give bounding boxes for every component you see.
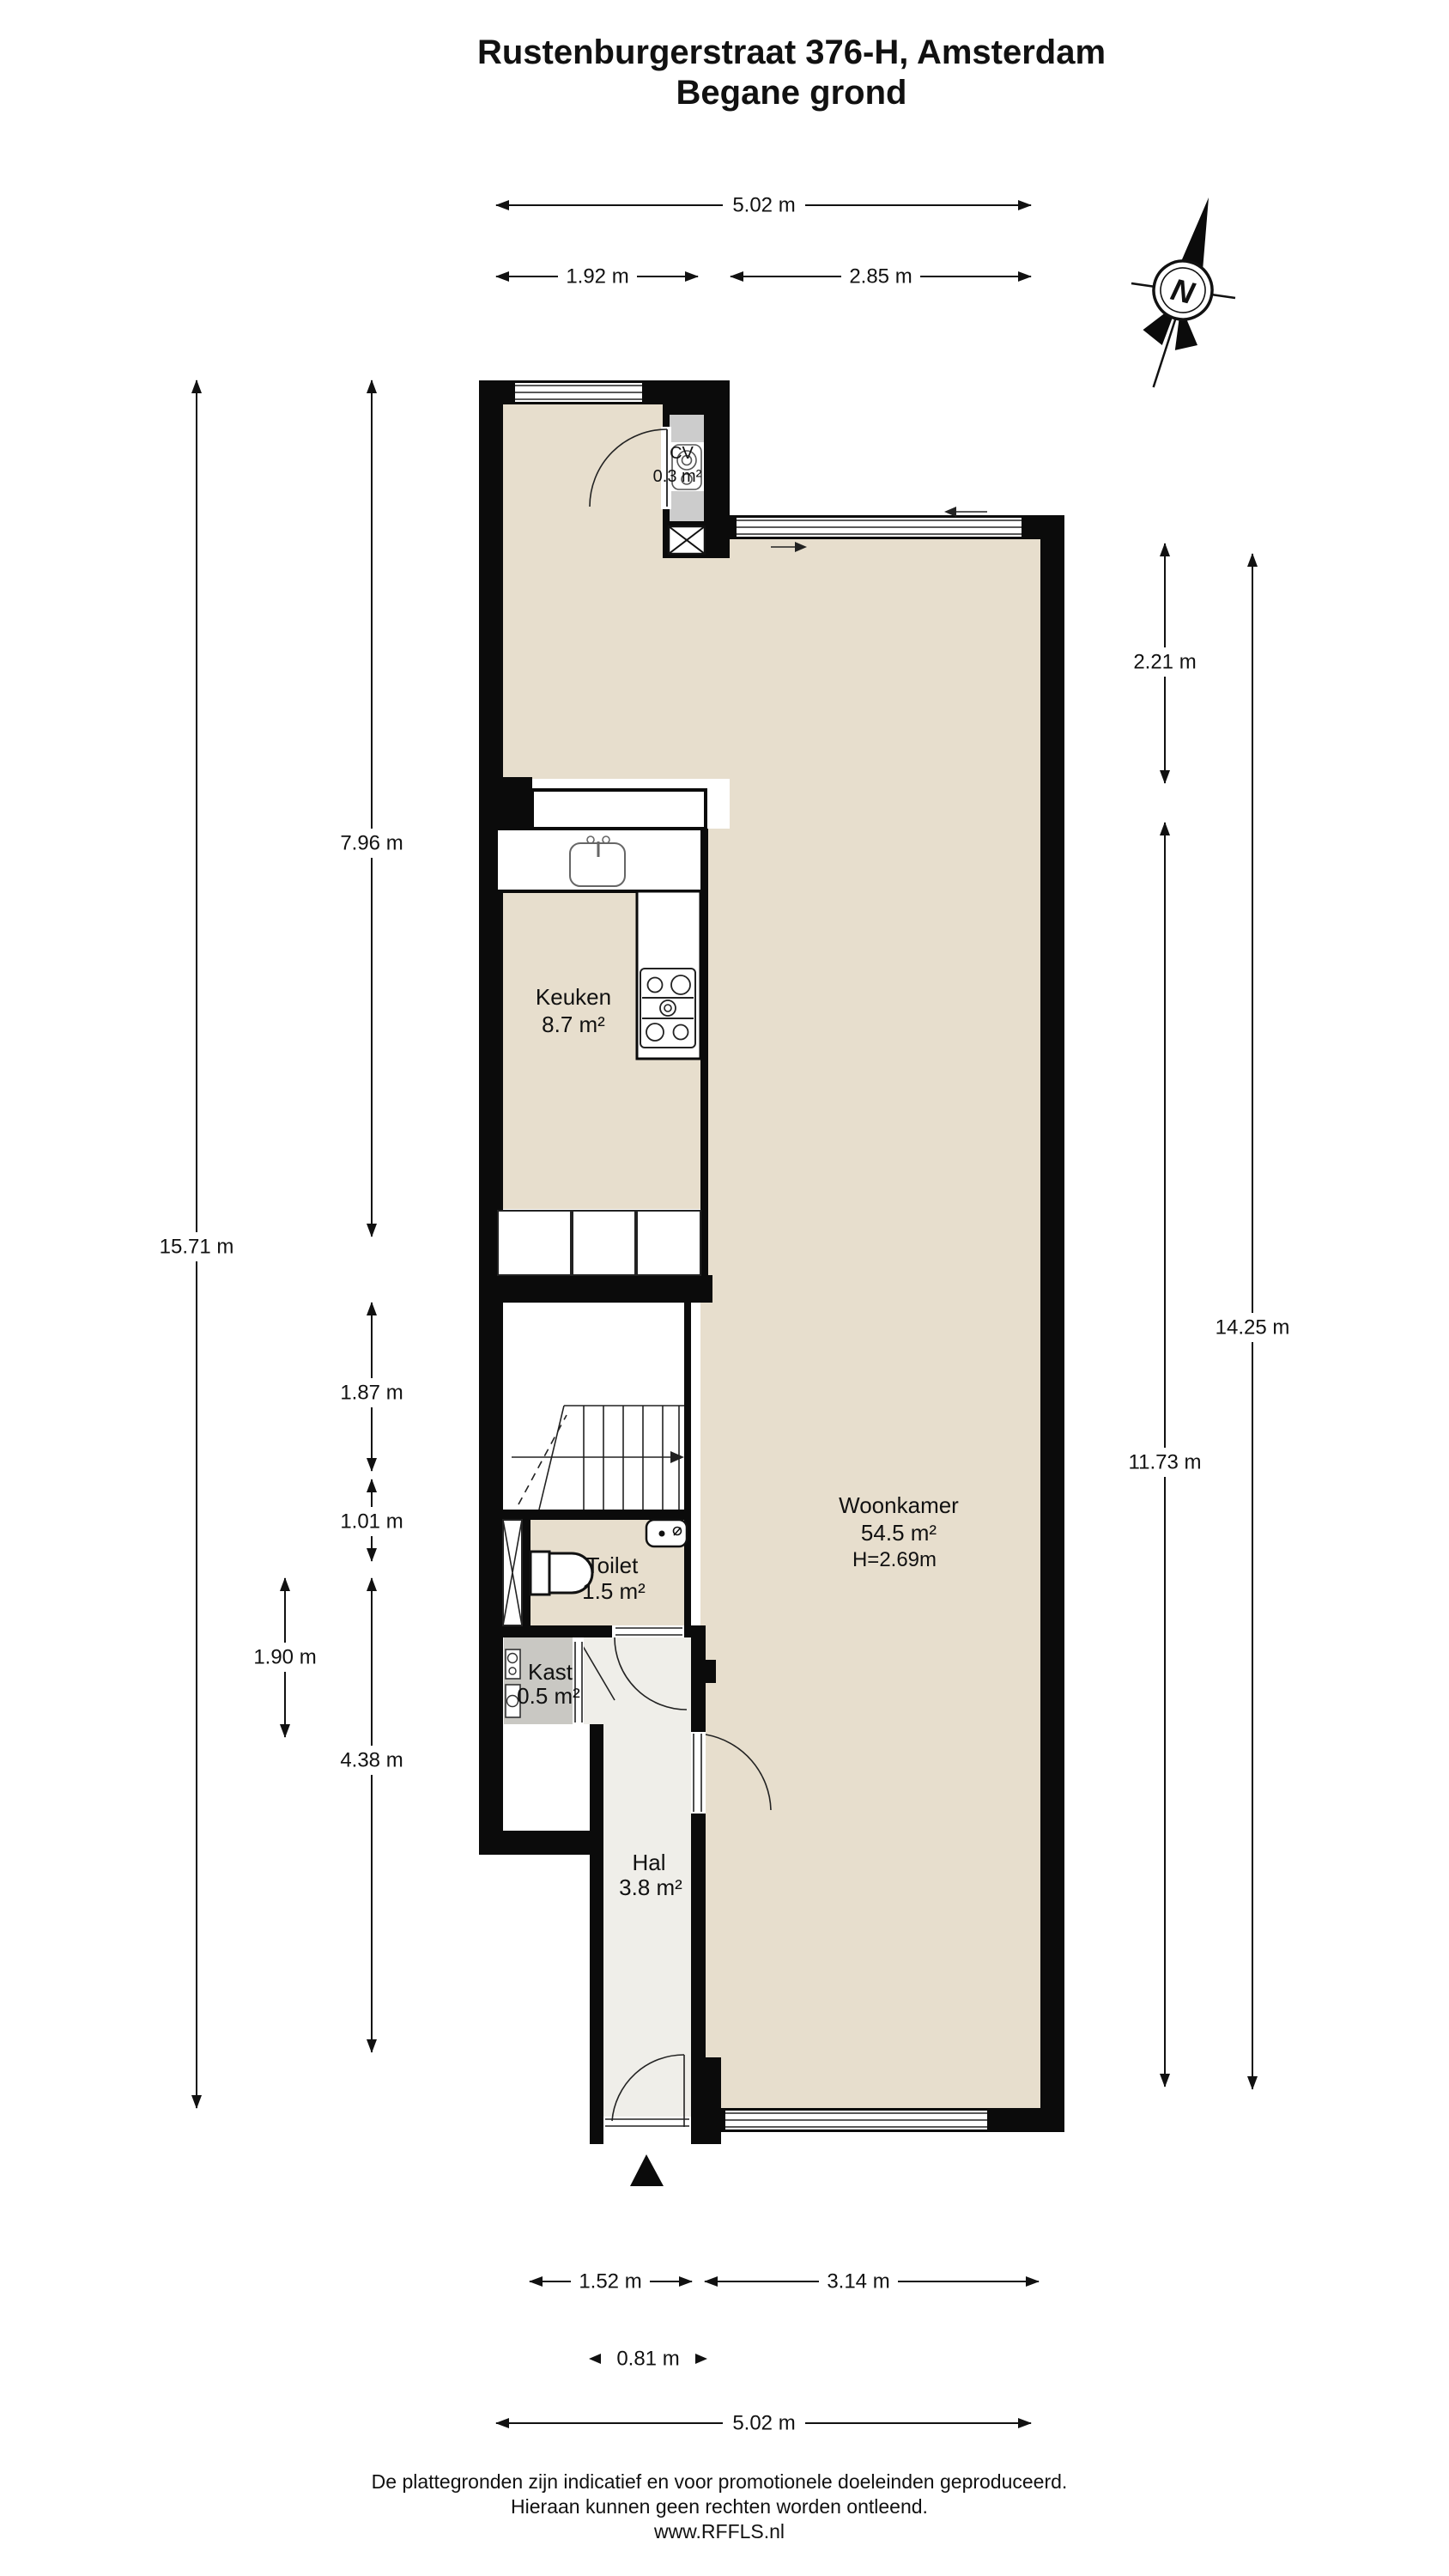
room-area-keuken: 8.7 m² xyxy=(542,1012,605,1037)
room-area-toilet: 1.5 m² xyxy=(582,1578,646,1604)
sink-icon xyxy=(570,836,625,886)
footer-disclaimer: De plattegronden zijn indicatief en voor… xyxy=(0,2470,1449,2544)
dim-bottom-woonkamer: 3.14 m xyxy=(827,2270,889,2293)
dim-left-total: 15.71 m xyxy=(160,1236,234,1259)
dim-bottom-door-group: 0.81 m xyxy=(589,2348,707,2371)
dim-left-kast: 1.90 m xyxy=(253,1646,316,1669)
dim-left-keuken: 7.96 m xyxy=(340,832,403,855)
dim-bottom-total: 5.02 m xyxy=(732,2412,795,2435)
room-label-kast: Kast xyxy=(528,1659,573,1685)
dim-right-upper: 2.21 m xyxy=(1133,651,1196,674)
flue-box-icon xyxy=(669,526,705,554)
hand-basin-icon xyxy=(646,1520,687,1546)
window-top-facade xyxy=(515,383,642,402)
shaft xyxy=(503,1520,522,1625)
dim-top-total: 5.02 m xyxy=(732,194,795,217)
room-label-hal: Hal xyxy=(632,1850,665,1875)
dim-bottom-hal: 1.52 m xyxy=(579,2270,641,2293)
room-label-woonkamer: Woonkamer xyxy=(839,1492,959,1518)
room-area-kast: 0.5 m² xyxy=(517,1683,580,1709)
room-label-toilet: Toilet xyxy=(586,1552,639,1578)
dim-left-toilet: 1.01 m xyxy=(340,1510,403,1534)
dim-top-left: 1.92 m xyxy=(566,265,628,289)
dim-left-hal: 4.38 m xyxy=(340,1749,403,1772)
room-area-cv: 0.3 m² xyxy=(653,467,702,486)
footer-line-2: Hieraan kunnen geen rechten worden ontle… xyxy=(0,2494,1444,2519)
entrance-marker-icon xyxy=(630,2154,664,2186)
window-woonkamer-bottom xyxy=(725,2111,987,2129)
room-label-keuken: Keuken xyxy=(536,984,611,1010)
floorplan-page: Rustenburgerstraat 376-H, Amsterdam Bega… xyxy=(0,0,1449,2576)
stove-icon xyxy=(640,969,695,1048)
dim-right-woonkamer: 11.73 m xyxy=(1129,1451,1202,1474)
closet-row xyxy=(498,1211,700,1275)
kast-door xyxy=(573,1640,584,1724)
compass-rose: N xyxy=(1130,190,1235,396)
dim-bottom-door: 0.81 m xyxy=(616,2348,679,2371)
dim-top-right: 2.85 m xyxy=(849,265,912,289)
room-area-woonkamer: 54.5 m² xyxy=(861,1520,937,1546)
dim-right-total: 14.25 m xyxy=(1216,1316,1290,1340)
footer-line-1: De plattegronden zijn indicatief en voor… xyxy=(0,2470,1444,2494)
footer-website: www.RFFLS.nl xyxy=(0,2519,1444,2544)
room-area-hal: 3.8 m² xyxy=(619,1874,682,1900)
dim-left-stairs: 1.87 m xyxy=(340,1382,403,1405)
room-height-woonkamer: H=2.69m xyxy=(852,1548,937,1571)
room-label-cv: CV xyxy=(670,444,694,463)
window-woonkamer-top xyxy=(737,518,1022,537)
floor-plan-svg: N CV 0.3 m² Keuken 8.7 m² Woonkamer 54.5… xyxy=(0,0,1449,2576)
